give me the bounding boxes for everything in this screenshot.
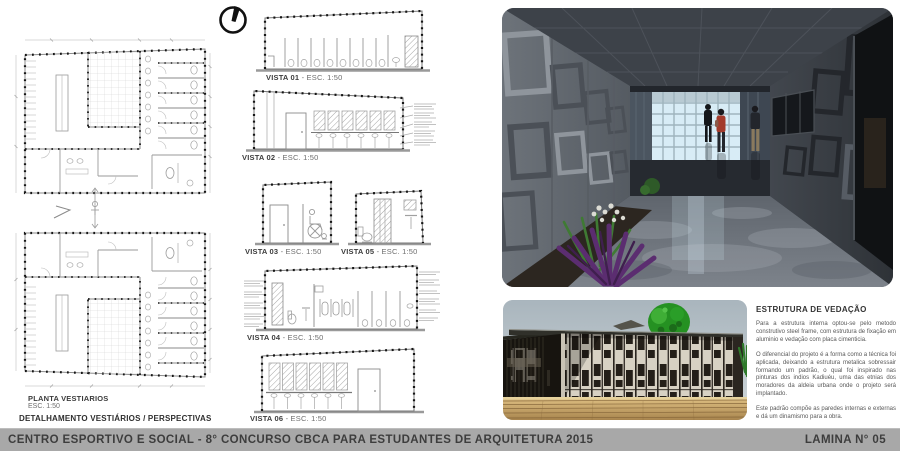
footer-bar: CENTRO ESPORTIVO E SOCIAL - 8° CONCURSO … bbox=[0, 428, 900, 451]
notes-heading: ESTRUTURA DE VEDAÇÃO bbox=[756, 305, 896, 314]
vista-04-label: VISTA 04 - ESC. 1:50 bbox=[247, 333, 324, 342]
plan-scale: ESC. 1:50 bbox=[28, 403, 60, 410]
annotation-leaders bbox=[400, 104, 436, 145]
notes-paragraph-3: Este padrão compõe as paredes internas e… bbox=[756, 406, 896, 422]
annotation-leaders bbox=[244, 281, 264, 327]
presentation-board: PLANTA VESTIARIOS ESC. 1:50 DETALHAMENTO… bbox=[0, 0, 900, 451]
vista-02-drawing bbox=[246, 91, 436, 151]
break-line-symbol bbox=[54, 206, 70, 218]
render-interior-corridor bbox=[502, 8, 893, 287]
notes-block: ESTRUTURA DE VEDAÇÃO Para a estrutura in… bbox=[756, 305, 896, 429]
elevations-drawing bbox=[210, 0, 470, 428]
vista-04-drawing bbox=[244, 266, 440, 330]
sheet-title: CENTRO ESPORTIVO E SOCIAL - 8° CONCURSO … bbox=[8, 434, 593, 446]
sheet-number: LAMINA N° 05 bbox=[805, 434, 886, 446]
annotation-leaders bbox=[419, 272, 440, 321]
vista-02-label: VISTA 02 - ESC. 1:50 bbox=[242, 153, 319, 162]
render-exterior-facade bbox=[503, 300, 747, 420]
plan-title: PLANTA VESTIARIOS bbox=[28, 394, 109, 403]
north-arrow-icon bbox=[221, 6, 246, 33]
vista-06-drawing bbox=[254, 349, 424, 412]
floor-plans-drawing bbox=[6, 36, 231, 428]
entry-figure-symbol bbox=[91, 188, 99, 228]
notes-paragraph-1: Para a estrutura interna optou-se pelo m… bbox=[756, 321, 896, 345]
sheet-section-caption: DETALHAMENTO VESTIÁRIOS / PERSPECTIVAS bbox=[19, 414, 212, 423]
vista-05-label: VISTA 05 - ESC. 1:50 bbox=[341, 247, 418, 256]
vista-01-label: VISTA 01 - ESC. 1:50 bbox=[266, 73, 343, 82]
notes-paragraph-2: O diferencial do projeto é a forma como … bbox=[756, 352, 896, 399]
vista-03-drawing bbox=[255, 182, 339, 244]
vista-06-label: VISTA 06 - ESC. 1:50 bbox=[250, 414, 327, 423]
vista-05-drawing bbox=[348, 191, 431, 244]
vista-01-drawing bbox=[256, 11, 430, 71]
vista-03-label: VISTA 03 - ESC. 1:50 bbox=[245, 247, 322, 256]
